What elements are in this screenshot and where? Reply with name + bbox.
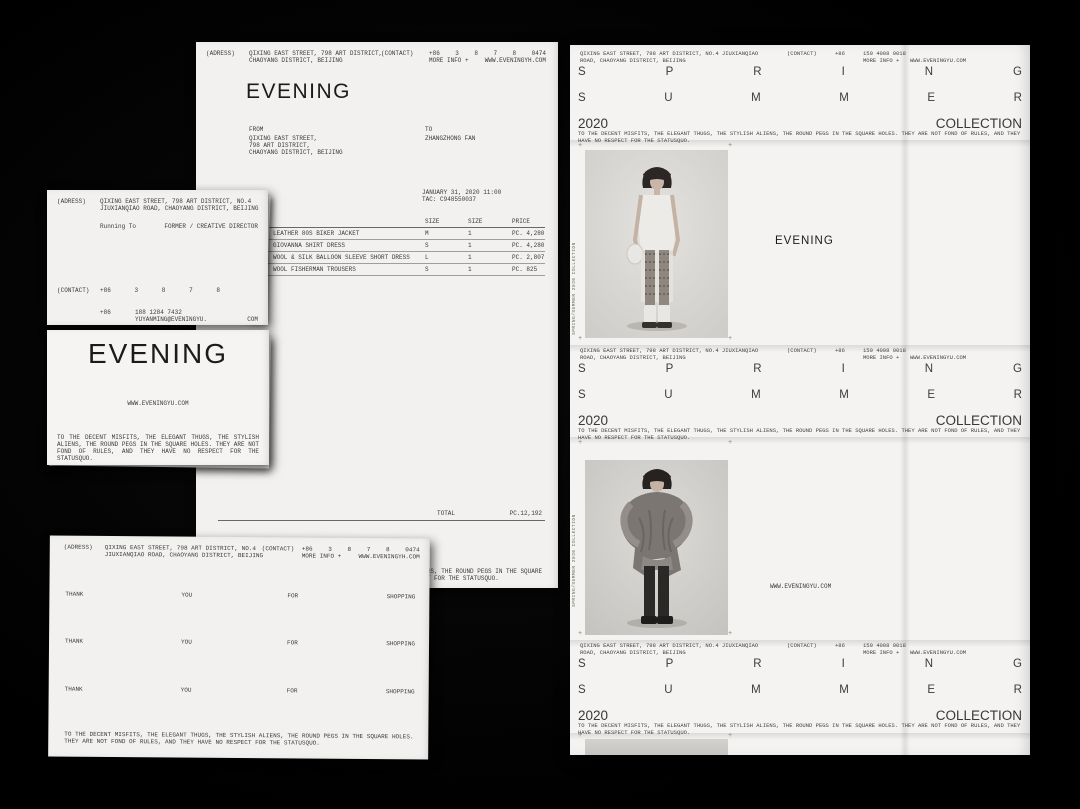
invoice-col-price: PRICE xyxy=(512,218,530,225)
poster-header-3: QIXING EAST STREET, 798 ART DISTRICT, NO… xyxy=(570,640,1030,732)
poster-website: WWW.EVENINGYU.COM xyxy=(910,355,966,362)
receipt-address-label: (ADRESS) xyxy=(64,544,93,551)
shopping-word: SHOPPING xyxy=(349,640,415,648)
invoice-datetime: JANUARY 31, 2020 11:00 xyxy=(422,189,501,196)
poster-contact-label: (CONTACT) xyxy=(787,51,817,58)
model-photo-1 xyxy=(585,150,728,338)
invoice-to-name: ZHANGZHONG FAN xyxy=(425,135,475,142)
invoice-col-size1: SIZE xyxy=(425,218,439,225)
logo-card-brand: EVENING xyxy=(47,338,269,370)
poster-panel-2: + + + + SPRING/SUMMER 2020 COLLECTION xyxy=(570,437,1030,640)
poster-header-1: QIXING EAST STREET, 798 ART DISTRICT, NO… xyxy=(570,48,1030,140)
poster-season-summer: SUMMER xyxy=(578,684,1022,696)
invoice-item-price: PC. 4,280 xyxy=(512,242,544,249)
poster-season-summer: SUMMER xyxy=(578,92,1022,104)
invoice-item-qty: 1 xyxy=(468,230,472,237)
for-word: FOR xyxy=(287,639,298,646)
card-contact-label: (CONTACT) xyxy=(57,287,89,294)
poster-contact-label: (CONTACT) xyxy=(787,348,817,355)
poster-contact-label: (CONTACT) xyxy=(787,643,817,650)
poster-phone-prefix: +86 xyxy=(835,51,845,58)
card-mobile-prefix: +86 xyxy=(100,309,111,316)
logo-card: EVENING WWW.EVENINGYU.COM TO THE DECENT … xyxy=(47,330,269,465)
card-email: YUYANMING@EVENINGYU. xyxy=(135,316,207,323)
thank-word: THANK xyxy=(65,686,83,693)
poster-season-summer: SUMMER xyxy=(578,389,1022,401)
poster-phone-prefix: +86 xyxy=(835,643,845,650)
business-card: (ADRESS) QIXING EAST STREET, 798 ART DIS… xyxy=(47,190,268,325)
for-word: FOR xyxy=(287,592,298,599)
poster-year: 2020 xyxy=(578,708,608,723)
invoice-item-qty: 1 xyxy=(468,242,472,249)
poster-phone-prefix: +86 xyxy=(835,348,845,355)
card-mobile: 188 1284 7432 xyxy=(135,309,182,316)
poster-year: 2020 xyxy=(578,116,608,131)
poster-season-spring: SPRING xyxy=(578,363,1022,375)
you-word: YOU xyxy=(181,687,192,694)
poster-address: QIXING EAST STREET, 798 ART DISTRICT, NO… xyxy=(580,348,758,361)
invoice-tac: TAC: C948550037 xyxy=(422,196,476,203)
invoice-item-qty: 1 xyxy=(468,254,472,261)
invoice-to-label: TO xyxy=(425,126,432,133)
poster-season-spring: SPRING xyxy=(578,66,1022,78)
receipt-slogan: TO THE DECENT MISFITS, THE ELEGANT THUGS… xyxy=(64,731,414,748)
invoice-contact-label: (CONTACT) xyxy=(381,50,413,57)
poster-website: WWW.EVENINGYU.COM xyxy=(910,650,966,657)
poster-website: WWW.EVENINGYU.COM xyxy=(910,58,966,65)
invoice-from-label: FROM xyxy=(249,126,263,133)
card-email-tld: COM xyxy=(207,316,258,323)
mockup-scene: (ADRESS) QIXING EAST STREET, 798 ART DIS… xyxy=(0,0,1080,809)
poster-header-2: QIXING EAST STREET, 798 ART DISTRICT, NO… xyxy=(570,345,1030,437)
invoice-item-qty: 1 xyxy=(468,266,472,273)
invoice-address-label: (ADRESS) xyxy=(206,50,235,57)
card-phone: +863878 xyxy=(100,287,220,294)
poster-caption-brand: EVENING xyxy=(775,235,834,247)
poster-collection-label: COLLECTION xyxy=(822,413,1022,428)
invoice-from-address: QIXING EAST STREET, 798 ART DISTRICT, CH… xyxy=(249,135,343,156)
invoice-item-name: GIOVANNA SHIRT DRESS xyxy=(273,242,345,249)
poster-collection-label: COLLECTION xyxy=(822,116,1022,131)
shopping-word: SHOPPING xyxy=(349,688,415,696)
invoice-phone: +8638780474 xyxy=(429,50,546,57)
poster-more-info: MORE INFO + xyxy=(863,58,899,65)
invoice-item-size: L xyxy=(425,254,429,261)
receipt-address: QIXING EAST STREET, 798 ART DISTRICT, NO… xyxy=(105,544,264,559)
poster-year: 2020 xyxy=(578,413,608,428)
receipt-sheet: (ADRESS) QIXING EAST STREET, 798 ART DIS… xyxy=(48,536,430,760)
poster-side-label-1: SPRING/SUMMER 2020 COLLECTION xyxy=(572,185,577,335)
poster-caption-website: WWW.EVENINGYU.COM xyxy=(770,583,831,590)
model-photo-2 xyxy=(585,460,728,635)
poster-slogan: TO THE DECENT MISFITS, THE ELEGANT THUGS… xyxy=(578,723,1022,736)
poster-more-info: MORE INFO + xyxy=(863,650,899,657)
receipt-website: WWW.EVENINGYH.COM xyxy=(302,552,420,560)
invoice-total-value: PC.12,192 xyxy=(437,510,542,517)
invoice-item-size: S xyxy=(425,266,429,273)
logo-card-slogan: TO THE DECENT MISFITS, THE ELEGANT THUGS… xyxy=(57,434,259,462)
invoice-item-name: WOOL FISHERMAN TROUSERS xyxy=(273,266,356,273)
poster-collection-label: COLLECTION xyxy=(822,708,1022,723)
receipt-contact-label: (CONTACT) xyxy=(262,545,294,552)
card-person-name: Running To xyxy=(100,223,136,230)
poster-side-label-2: SPRING/SUMMER 2020 COLLECTION xyxy=(572,497,577,607)
invoice-item-price: PC. 2,807 xyxy=(512,254,544,261)
card-person-title: FORMER / CREATIVE DIRECTOR xyxy=(147,223,258,230)
card-address-label: (ADRESS) xyxy=(57,198,86,205)
invoice-col-size2: SIZE xyxy=(468,218,482,225)
poster-season-spring: SPRING xyxy=(578,658,1022,670)
thank-word: THANK xyxy=(65,638,83,645)
partial-photo-strip xyxy=(585,739,728,755)
for-word: FOR xyxy=(287,687,298,694)
card-address: QIXING EAST STREET, 798 ART DISTRICT, NO… xyxy=(100,198,258,212)
poster-panel-1: + + + + SPRING/SUMMER 2020 COLLECTION xyxy=(570,140,1030,345)
invoice-item-price: PC. 4,280 xyxy=(512,230,544,237)
poster-address: QIXING EAST STREET, 798 ART DISTRICT, NO… xyxy=(580,643,758,656)
shopping-word: SHOPPING xyxy=(349,593,415,601)
poster-more-info: MORE INFO + xyxy=(863,355,899,362)
you-word: YOU xyxy=(181,592,192,599)
invoice-item-size: S xyxy=(425,242,429,249)
invoice-item-size: M xyxy=(425,230,429,237)
invoice-item-name: WOOL & SILK BALLOON SLEEVE SHORT DRESS xyxy=(273,254,410,261)
invoice-brand-logo: EVENING xyxy=(246,80,351,104)
poster-roll: QIXING EAST STREET, 798 ART DISTRICT, NO… xyxy=(570,45,1030,755)
invoice-website: WWW.EVENINGYH.COM xyxy=(429,57,546,64)
invoice-address: QIXING EAST STREET, 798 ART DISTRICT, CH… xyxy=(249,50,382,64)
logo-card-website: WWW.EVENINGYU.COM xyxy=(47,400,269,407)
you-word: YOU xyxy=(181,639,192,646)
poster-address: QIXING EAST STREET, 798 ART DISTRICT, NO… xyxy=(580,51,758,64)
thank-word: THANK xyxy=(65,591,83,598)
invoice-item-price: PC. 825 xyxy=(512,266,537,273)
invoice-item-name: LEATHER 80S BIKER JACKET xyxy=(273,230,359,237)
